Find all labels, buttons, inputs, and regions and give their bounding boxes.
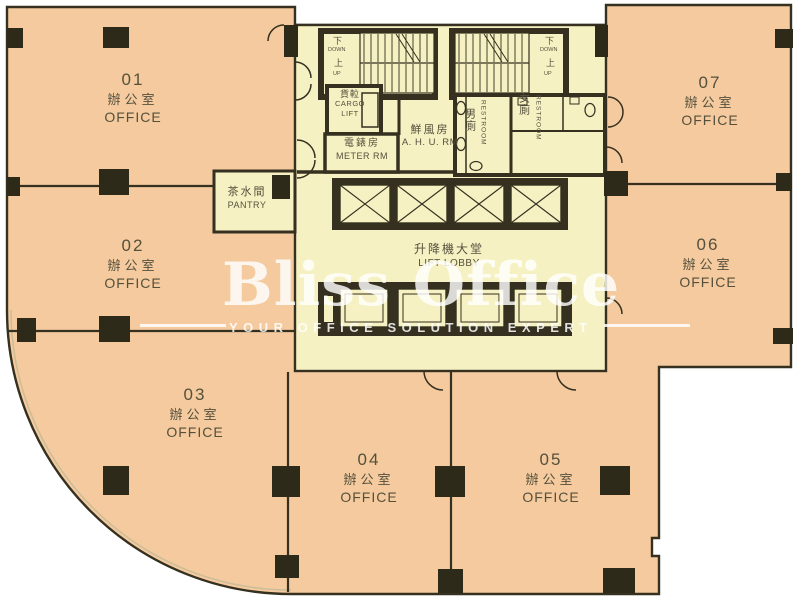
office-name-en: OFFICE [130,424,260,440]
watermark-brand: Bliss Office [222,250,602,320]
office-03-label: 03 辦公室 OFFICE [130,385,260,441]
office-name-en: OFFICE [68,275,198,291]
stair-down-zh: 下 [545,36,554,46]
office-06-label: 06 辦公室 OFFICE [643,235,773,291]
watermark-line-right [604,324,690,327]
office-name-en: OFFICE [645,112,775,128]
office-name-zh: 辦公室 [68,93,198,108]
office-name-en: OFFICE [304,489,434,505]
female-toilet-label-en: RESTROOM [534,95,541,141]
restrooms [455,95,605,175]
stair-down-zh: 下 [333,36,342,46]
office-number: 07 [645,73,775,93]
office-04-label: 04 辦公室 OFFICE [304,450,434,506]
office-number: 03 [130,385,260,405]
office-name-en: OFFICE [643,274,773,290]
office-number: 05 [486,450,616,470]
office-name-en: OFFICE [68,109,198,125]
stair-up-en: UP [544,71,552,77]
cargo-lift-label: 貨𨋢 CARGO LIFT [328,89,372,119]
stair-up-en: UP [333,71,341,77]
floor-plan-page: 01 辦公室 OFFICE 02 辦公室 OFFICE 03 辦公室 OFFIC… [0,0,800,600]
pantry-label: 茶水間 PANTRY [187,186,307,210]
office-name-zh: 辦公室 [486,473,616,488]
office-07-label: 07 辦公室 OFFICE [645,73,775,129]
office-name-zh: 辦公室 [304,473,434,488]
stair-down-en: DOWN [328,47,345,53]
office-name-en: OFFICE [486,489,616,505]
office-number: 01 [68,70,198,90]
office-number: 06 [643,235,773,255]
office-name-zh: 辦公室 [130,408,260,423]
watermark-line-left [140,324,226,327]
office-01-label: 01 辦公室 OFFICE [68,70,198,126]
male-toilet-label-zh: 男廁 [463,108,476,132]
office-number: 02 [68,236,198,256]
stair-up-zh: 上 [334,58,343,68]
office-name-zh: 辦公室 [643,258,773,273]
ahu-room-label: 鮮風房 A. H. U. RM [390,124,470,149]
watermark-tagline: YOUR OFFICE SOLUTION EXPERT [229,320,593,335]
lift-bank-upper [332,178,568,230]
office-name-zh: 辦公室 [68,259,198,274]
male-toilet-label-en: RESTROOM [479,100,486,146]
office-05-label: 05 辦公室 OFFICE [486,450,616,506]
office-number: 04 [304,450,434,470]
stair-up-zh: 上 [546,58,555,68]
stair-down-en: DOWN [540,47,557,53]
office-02-label: 02 辦公室 OFFICE [68,236,198,292]
office-name-zh: 辦公室 [645,96,775,111]
female-toilet-label-zh: 女廁 [517,92,530,116]
